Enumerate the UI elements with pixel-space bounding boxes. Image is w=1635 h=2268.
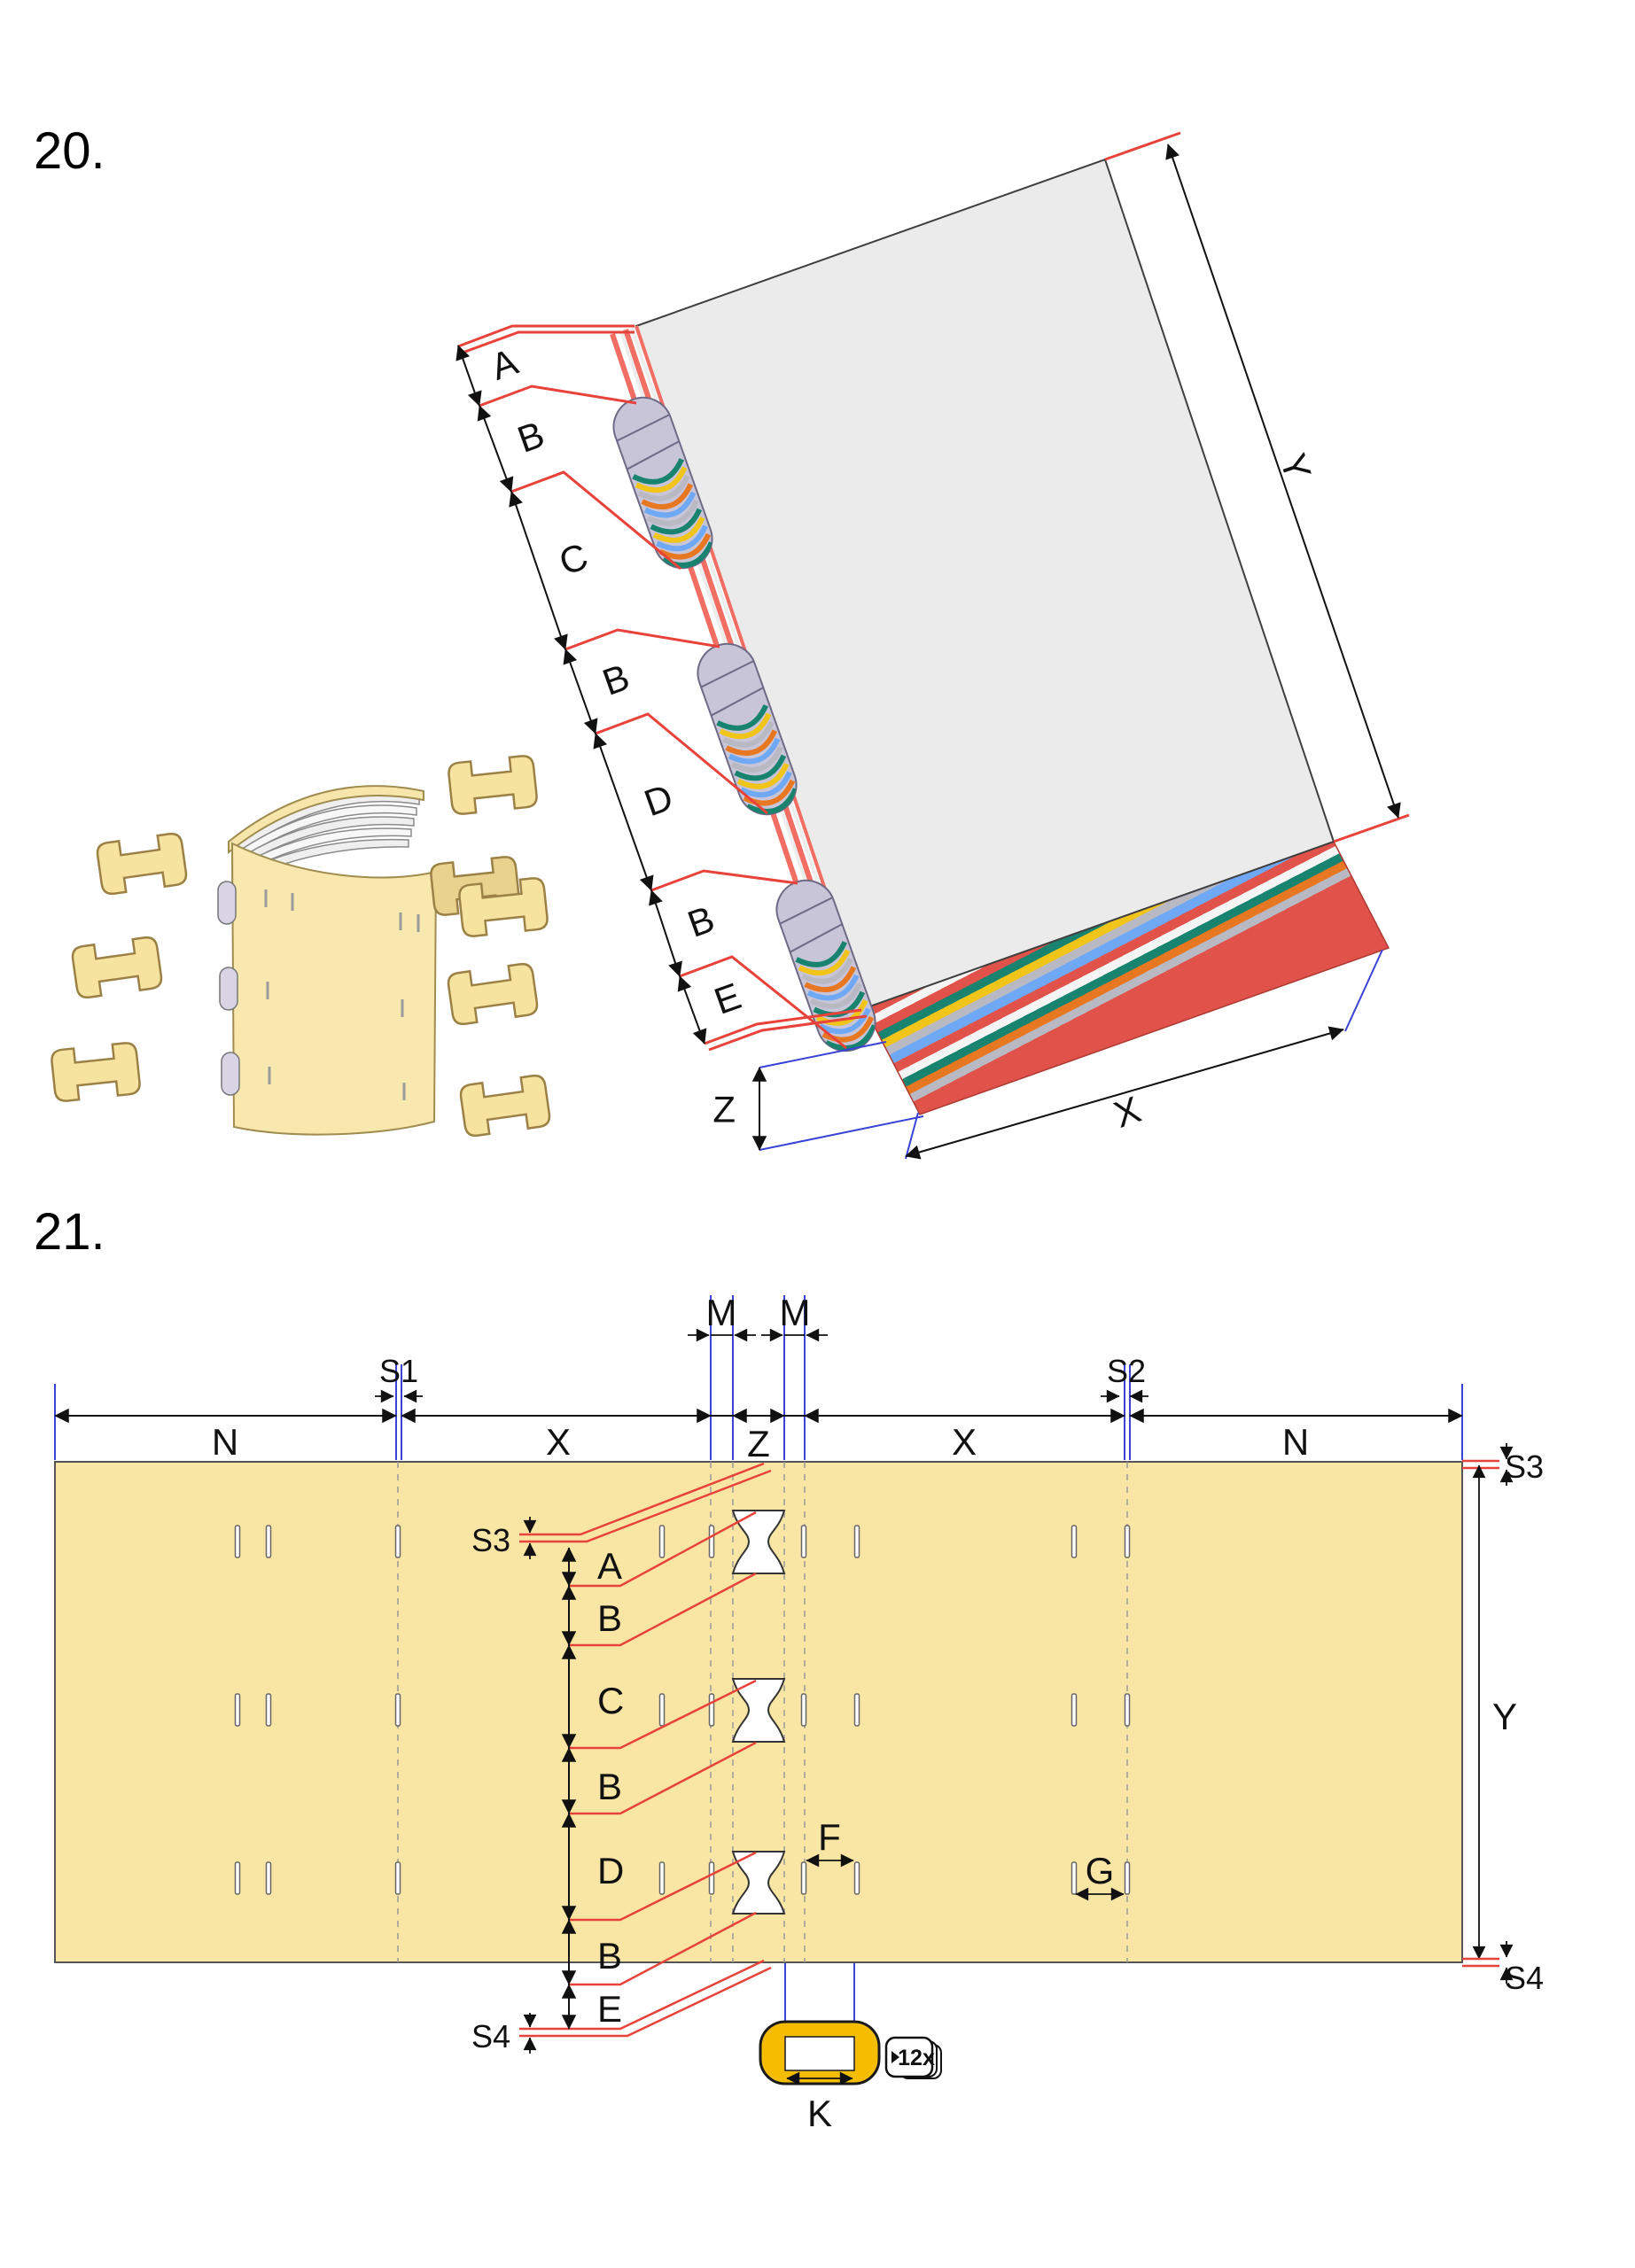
dim-G: G [1086,1850,1115,1891]
right-dimensions: S3 Y S4 [1462,1443,1544,1996]
dim-B2: B [597,656,635,703]
dim-Z-20: Z [712,1089,736,1130]
dim-B2-21: B [597,1766,622,1807]
dim-Y-20: Y [1272,448,1320,485]
dim-S3-left: S3 [471,1522,510,1558]
slit [802,1526,806,1557]
assembled-book-thumbnail [51,755,550,1137]
figure-21: 21. [34,1203,1544,2134]
dim-D-21: D [597,1850,624,1891]
figure-20: 20. [34,122,1409,1159]
dim-B3: B [682,897,720,945]
diagram-page: 20. [0,0,1635,2268]
dim-Y-21: Y [1492,1696,1517,1737]
dim-C: C [554,535,593,583]
slit [802,1862,806,1894]
s1-dimension: S1 [375,1353,423,1396]
spine-bumps [218,882,239,1095]
dim-B3-21: B [597,1935,622,1977]
slit [267,1694,271,1726]
step-20-number: 20. [34,122,105,180]
toggle-notch [785,2037,854,2070]
dim-F: F [818,1816,841,1858]
slit [710,1526,714,1557]
slit [236,1694,240,1726]
slit [267,1862,271,1894]
dim-B1-21: B [597,1597,622,1639]
dim-X-20: X [1109,1088,1146,1136]
dim-X-right: X [952,1421,977,1463]
dim-B: B [512,413,549,461]
dim-S3-right: S3 [1505,1449,1544,1485]
slit [710,1862,714,1894]
dim-S2: S2 [1107,1353,1146,1389]
slit [1125,1526,1130,1557]
toggle [96,833,187,896]
slit [660,1694,665,1726]
slit [1072,1694,1077,1726]
slit [236,1862,240,1894]
toggle [459,1075,550,1138]
slit [396,1862,401,1894]
slit [802,1694,806,1726]
slit [855,1694,860,1726]
dim-S4-left: S4 [471,2018,510,2054]
bookbinding-diagram: 20. [0,0,1635,2268]
toggle [51,1042,141,1102]
slit [1072,1526,1077,1557]
quantity-label: 12x [898,2046,935,2070]
toggle-detail: K 12x [760,1963,941,2134]
slit [236,1526,240,1557]
width-dimension-line: N X Z X N [55,1416,1462,1464]
dim-D: D [639,776,678,824]
toggle [447,963,538,1026]
dim-N-left: N [212,1421,238,1463]
dim-S1: S1 [379,1353,418,1389]
slit [1125,1694,1130,1726]
dim-N-right: N [1282,1421,1309,1463]
dim-M-right: M [780,1292,811,1333]
slit [1072,1862,1077,1894]
dim-M-left: M [706,1292,737,1333]
dim-C-21: C [597,1680,624,1721]
dim-E: E [709,975,746,1022]
slit [1125,1862,1130,1894]
quantity-badge: 12x [886,2038,941,2078]
dim-K: K [807,2093,832,2134]
dim-Z-21: Z [747,1423,770,1464]
slit [396,1526,401,1557]
toggle [71,936,162,999]
slit [855,1862,860,1894]
dim-S4-right: S4 [1505,1960,1544,1996]
step-21-number: 21. [34,1203,105,1261]
slit [710,1694,714,1726]
toggle [448,755,538,815]
dim-X-left: X [546,1421,571,1463]
dim-E-21: E [597,1988,622,2030]
slit [660,1862,665,1894]
slit [660,1526,665,1557]
dim-A-21: A [597,1545,622,1587]
slit [267,1526,271,1557]
m-dimensions: M M [688,1292,828,1335]
dim-A: A [486,340,523,388]
slit [396,1694,401,1726]
slit [855,1526,860,1557]
